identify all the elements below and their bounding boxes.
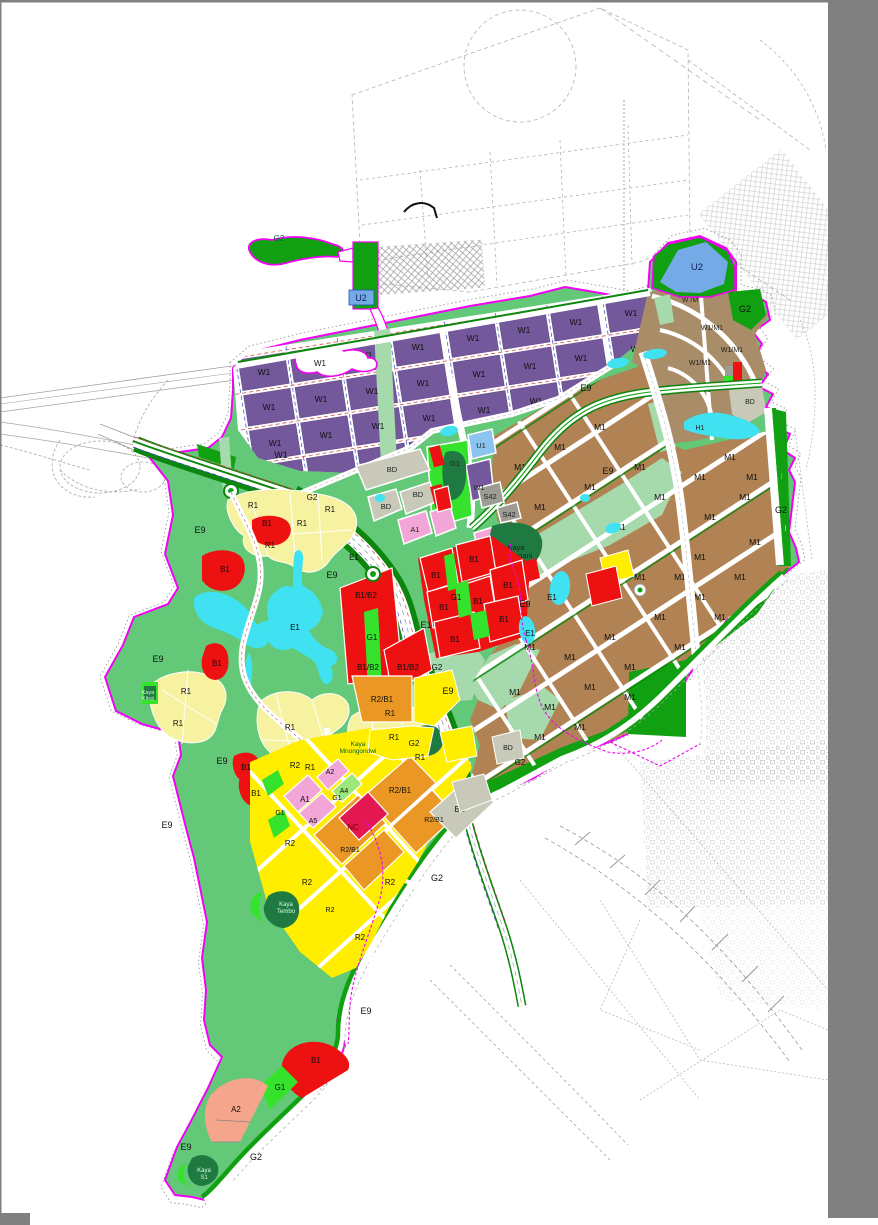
svg-text:G2: G2 [431, 873, 443, 883]
svg-text:G1: G1 [332, 795, 341, 802]
svg-text:W1: W1 [263, 402, 276, 412]
svg-text:NC: NC [347, 823, 359, 832]
svg-text:Kitoji: Kitoji [142, 696, 154, 702]
svg-text:R1: R1 [265, 541, 276, 550]
svg-text:M1: M1 [534, 732, 546, 742]
svg-text:M1: M1 [654, 492, 666, 502]
svg-text:B1: B1 [503, 581, 513, 590]
svg-text:M1: M1 [746, 472, 758, 482]
svg-text:M1: M1 [534, 502, 546, 512]
svg-text:B1: B1 [311, 1056, 321, 1065]
svg-text:G1: G1 [367, 633, 378, 642]
svg-text:R1: R1 [389, 733, 400, 742]
svg-text:W1: W1 [315, 394, 328, 404]
svg-text:R1: R1 [181, 687, 192, 696]
svg-text:W1: W1 [366, 386, 379, 396]
svg-text:G2: G2 [250, 1152, 262, 1162]
svg-text:M1: M1 [654, 612, 666, 622]
svg-text:M1: M1 [624, 662, 636, 672]
svg-text:M1: M1 [704, 512, 716, 522]
svg-text:E1: E1 [547, 593, 557, 602]
svg-text:R1: R1 [305, 763, 316, 772]
svg-text:R2: R2 [385, 878, 396, 887]
svg-text:E9: E9 [161, 820, 172, 830]
svg-text:G1: G1 [450, 459, 460, 468]
svg-text:E9: E9 [519, 599, 530, 609]
svg-text:E9: E9 [580, 383, 591, 393]
svg-text:S42: S42 [502, 510, 515, 519]
svg-text:U2: U2 [691, 262, 703, 273]
svg-text:B1: B1 [241, 763, 251, 772]
svg-text:G2: G2 [409, 739, 420, 748]
svg-text:E1: E1 [349, 553, 359, 562]
svg-text:M1: M1 [694, 472, 706, 482]
svg-text:M1: M1 [734, 572, 746, 582]
svg-text:W1: W1 [467, 333, 480, 343]
svg-text:M1: M1 [604, 632, 616, 642]
svg-text:R1: R1 [248, 501, 259, 510]
svg-text:M1: M1 [694, 592, 706, 602]
svg-text:M1: M1 [509, 687, 521, 697]
svg-text:G1: G1 [451, 593, 462, 602]
svg-text:W1: W1 [412, 342, 425, 352]
svg-text:A2: A2 [231, 1105, 241, 1114]
svg-text:R2: R2 [326, 907, 335, 914]
svg-text:G1: G1 [275, 1083, 286, 1092]
svg-text:W1: W1 [518, 325, 531, 335]
svg-text:W1: W1 [269, 438, 282, 448]
svg-text:B1: B1 [439, 603, 449, 612]
svg-text:B1: B1 [251, 789, 261, 798]
svg-text:E9: E9 [442, 686, 453, 696]
svg-text:A4: A4 [340, 788, 349, 795]
svg-text:G2: G2 [775, 505, 787, 515]
svg-text:A2: A2 [326, 769, 335, 776]
svg-text:M1: M1 [554, 442, 566, 452]
svg-text:W1/M1: W1/M1 [721, 347, 743, 354]
svg-text:Kaya: Kaya [279, 902, 293, 908]
svg-text:B1: B1 [450, 635, 460, 644]
svg-text:M1: M1 [574, 722, 586, 732]
svg-text:W1: W1 [625, 308, 638, 318]
svg-text:M1: M1 [564, 652, 576, 662]
svg-text:R2: R2 [285, 839, 296, 848]
svg-text:B1: B1 [499, 615, 509, 624]
svg-text:M1: M1 [544, 702, 556, 712]
svg-text:W1/M1: W1/M1 [689, 360, 711, 367]
svg-text:Tembo: Tembo [277, 909, 296, 915]
svg-text:B1: B1 [431, 571, 441, 580]
svg-text:B1/B2: B1/B2 [397, 663, 419, 672]
svg-text:E9: E9 [152, 654, 163, 664]
svg-text:B1: B1 [473, 597, 483, 606]
svg-text:B1: B1 [469, 555, 479, 564]
svg-text:R2: R2 [302, 878, 313, 887]
svg-text:E9: E9 [326, 570, 337, 580]
svg-text:M1: M1 [624, 692, 636, 702]
svg-text:A1: A1 [300, 795, 310, 804]
svg-text:S42: S42 [483, 492, 496, 501]
svg-text:R1: R1 [325, 505, 336, 514]
svg-text:M1: M1 [584, 682, 596, 692]
svg-text:W1: W1 [575, 353, 588, 363]
svg-text:R2/B1: R2/B1 [371, 695, 394, 704]
svg-text:M1: M1 [739, 492, 751, 502]
svg-text:E9: E9 [602, 466, 613, 476]
svg-text:W1: W1 [570, 317, 583, 327]
svg-text:W1: W1 [524, 361, 537, 371]
svg-text:U1: U1 [476, 441, 486, 450]
svg-text:H1: H1 [696, 425, 705, 432]
svg-text:W1: W1 [372, 421, 385, 431]
svg-text:G2: G2 [739, 304, 751, 314]
svg-text:G2: G2 [274, 234, 285, 243]
svg-text:BD: BD [413, 490, 424, 499]
svg-text:R2/B1: R2/B1 [424, 817, 444, 824]
svg-text:B1/B2: B1/B2 [357, 663, 379, 672]
svg-text:E1: E1 [290, 623, 300, 632]
svg-text:M1: M1 [714, 612, 726, 622]
svg-text:S1: S1 [200, 1175, 208, 1181]
svg-text:R1: R1 [285, 723, 296, 732]
svg-text:R1: R1 [173, 719, 184, 728]
svg-text:M1: M1 [749, 537, 761, 547]
svg-text:G2: G2 [307, 493, 318, 502]
svg-text:E1: E1 [420, 620, 431, 630]
svg-text:W1: W1 [314, 359, 327, 368]
svg-text:G2: G2 [432, 663, 443, 672]
svg-text:B1: B1 [220, 565, 230, 574]
svg-text:M1: M1 [634, 462, 646, 472]
svg-text:Mnongondwi: Mnongondwi [340, 748, 377, 755]
svg-text:Kaya: Kaya [197, 1168, 211, 1174]
svg-text:BD: BD [387, 465, 398, 474]
svg-text:W1/M1: W1/M1 [701, 325, 723, 332]
svg-text:W1: W1 [274, 450, 288, 460]
svg-text:B1: B1 [262, 519, 272, 528]
svg-text:W1: W1 [258, 367, 271, 377]
svg-text:R2/B1: R2/B1 [340, 847, 360, 854]
svg-text:R2: R2 [290, 761, 301, 770]
svg-text:M1: M1 [634, 572, 646, 582]
svg-text:G2: G2 [515, 758, 526, 767]
svg-text:B1/B2: B1/B2 [355, 591, 377, 600]
svg-text:W1: W1 [473, 483, 484, 492]
svg-text:Kaya: Kaya [351, 741, 366, 748]
svg-text:E9: E9 [216, 756, 227, 766]
svg-text:W /M: W /M [682, 297, 698, 304]
svg-text:E9: E9 [180, 1142, 191, 1152]
svg-text:B1: B1 [212, 659, 222, 668]
svg-text:BD: BD [503, 745, 513, 752]
svg-text:M1: M1 [594, 422, 606, 432]
svg-text:E1: E1 [525, 629, 535, 638]
svg-text:W1: W1 [478, 405, 491, 415]
svg-text:E9: E9 [194, 525, 205, 535]
svg-text:E9: E9 [360, 1006, 371, 1016]
svg-text:W1: W1 [473, 369, 486, 379]
svg-text:W1: W1 [417, 378, 430, 388]
svg-text:R1: R1 [385, 709, 396, 718]
svg-text:W1: W1 [320, 430, 333, 440]
svg-text:M1: M1 [694, 552, 706, 562]
svg-text:R1: R1 [297, 519, 308, 528]
svg-text:M1: M1 [674, 642, 686, 652]
svg-text:M1: M1 [584, 482, 596, 492]
svg-text:G1: G1 [275, 810, 284, 817]
svg-text:BD: BD [381, 502, 392, 511]
svg-text:M1: M1 [724, 452, 736, 462]
svg-text:R2/B1: R2/B1 [389, 786, 412, 795]
svg-text:A1: A1 [410, 525, 419, 534]
svg-text:R1: R1 [415, 753, 426, 762]
svg-text:W1: W1 [423, 413, 436, 423]
svg-text:R2: R2 [355, 933, 366, 942]
svg-text:A5: A5 [309, 818, 318, 825]
svg-text:U2: U2 [355, 293, 367, 303]
svg-text:BD: BD [745, 399, 755, 406]
